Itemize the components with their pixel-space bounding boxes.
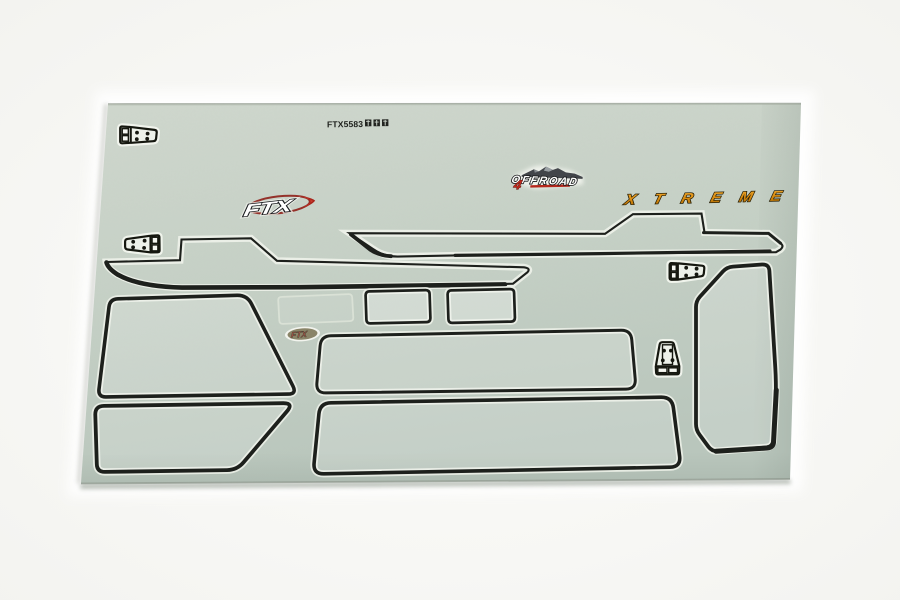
svg-text:FTX: FTX: [291, 329, 309, 340]
svg-text:FTX5583: FTX5583: [327, 119, 363, 129]
